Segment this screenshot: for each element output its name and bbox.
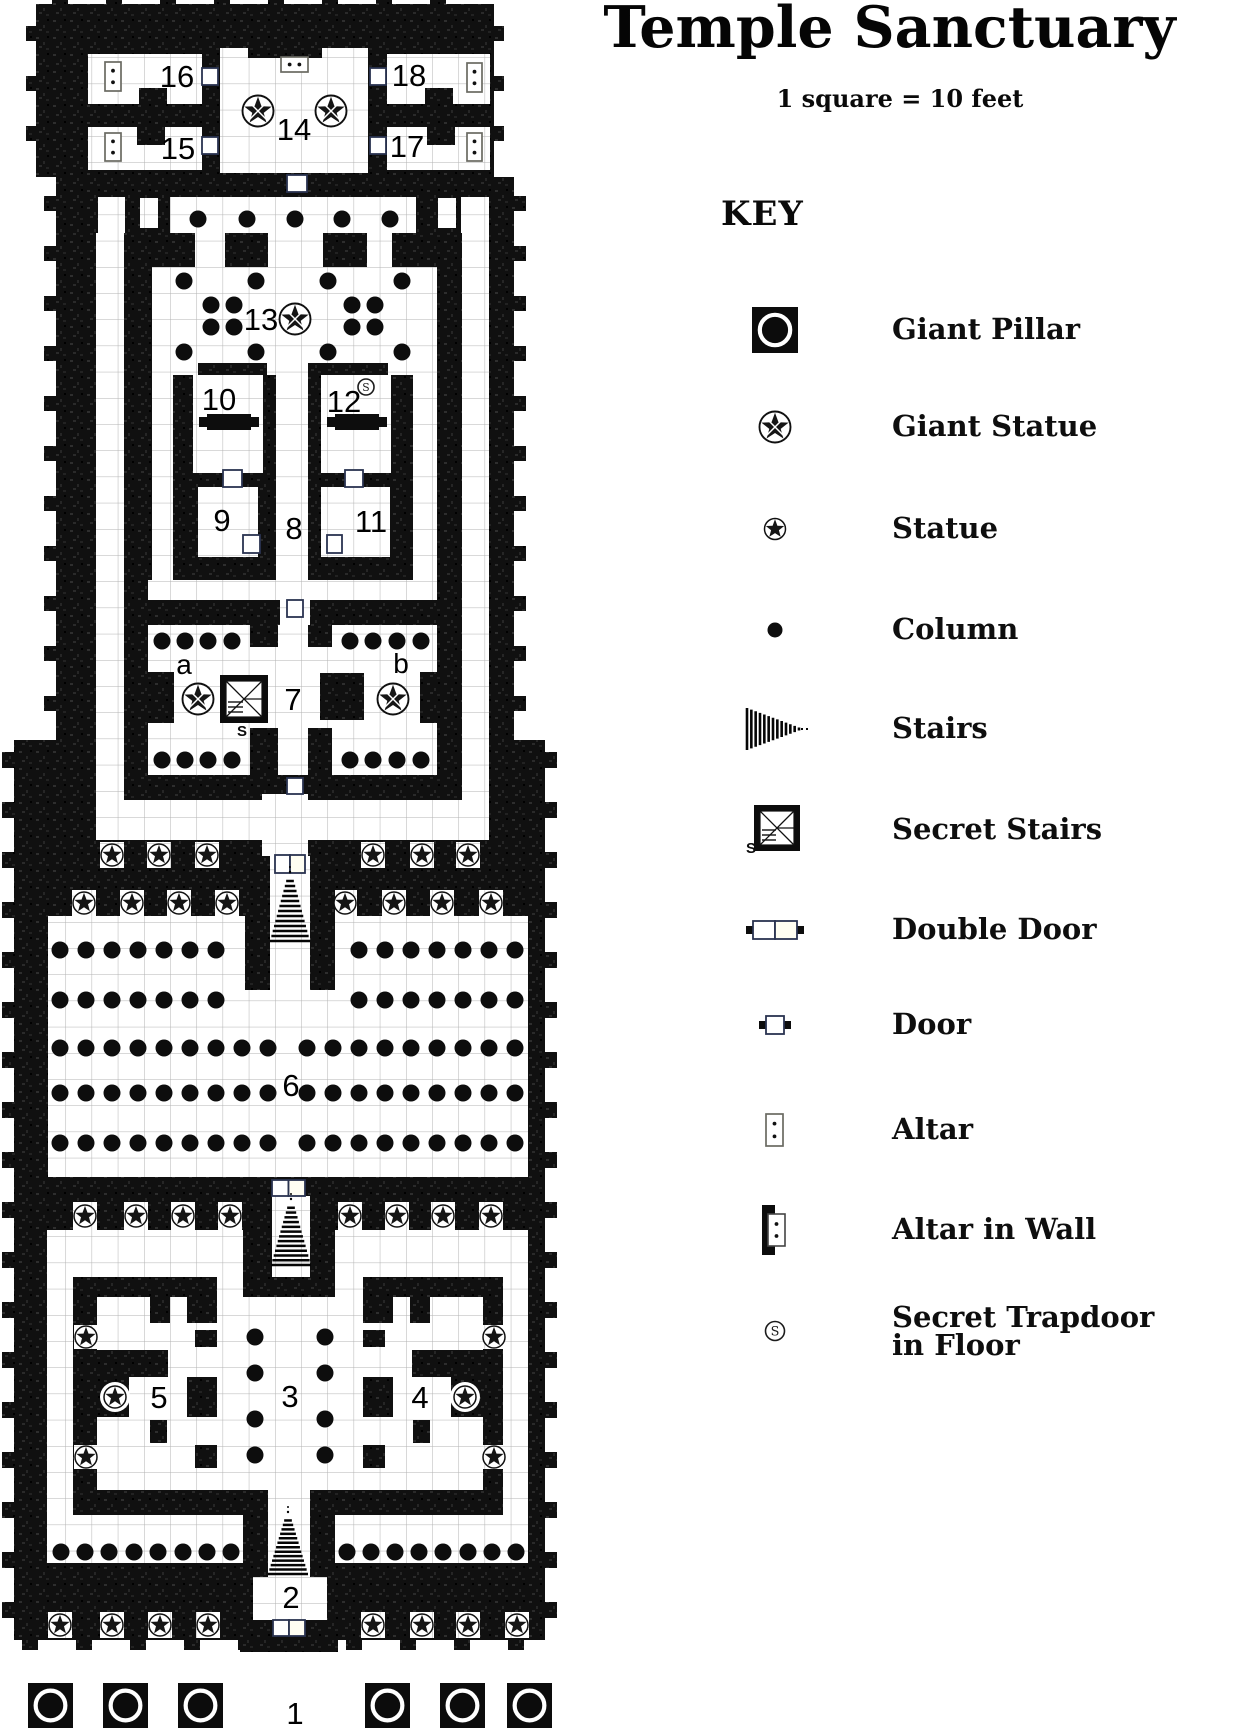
double-door-icon <box>746 921 804 939</box>
column-icon <box>247 1329 264 1346</box>
key-label: Giant Pillar <box>892 315 1080 343</box>
column-icon <box>156 992 173 1009</box>
statue-icon <box>431 892 453 914</box>
statue-icon <box>480 892 502 914</box>
key-label: Giant Statue <box>892 412 1097 440</box>
column-icon <box>351 992 368 1009</box>
column-icon <box>351 1135 368 1152</box>
column-icon <box>394 273 411 290</box>
giant-pillar-icon <box>103 1683 148 1728</box>
statue-icon <box>148 844 170 866</box>
column-icon <box>377 1135 394 1152</box>
double-door-icon <box>275 855 305 873</box>
column-icon <box>413 633 430 650</box>
column-icon <box>52 992 69 1009</box>
column-icon <box>299 1085 316 1102</box>
column-icon <box>260 1085 277 1102</box>
column-icon <box>176 344 193 361</box>
column-icon <box>339 1544 356 1561</box>
column-icon <box>104 1135 121 1152</box>
column-icon <box>365 752 382 769</box>
statue-icon <box>219 1205 241 1227</box>
giant-statue-icon <box>760 412 791 443</box>
room-label-6: 6 <box>282 1068 299 1103</box>
altar-icon <box>766 1114 783 1146</box>
room-label-1: 1 <box>286 1696 303 1731</box>
column-icon <box>208 942 225 959</box>
altar-icon <box>737 1096 817 1164</box>
column-icon <box>130 1085 147 1102</box>
column-icon <box>150 1544 167 1561</box>
column-icon <box>481 1085 498 1102</box>
column-icon <box>455 1085 472 1102</box>
column-icon <box>78 1085 95 1102</box>
column-icon <box>177 633 194 650</box>
column-icon <box>367 297 384 314</box>
statue-icon <box>483 1326 505 1348</box>
door-icon <box>287 600 303 617</box>
column-icon <box>377 1085 394 1102</box>
column-icon <box>429 992 446 1009</box>
column-icon <box>130 942 147 959</box>
statue-icon <box>125 1205 147 1227</box>
column-icon <box>507 942 524 959</box>
key-label: Door <box>892 1010 971 1038</box>
column-icon <box>317 1447 334 1464</box>
column-icon <box>130 1135 147 1152</box>
column-icon <box>154 752 171 769</box>
giant-pillar-icon <box>737 296 817 364</box>
column-icon <box>223 1544 240 1561</box>
column-icon <box>101 1544 118 1561</box>
key-label: Secret Trapdoor in Floor <box>892 1303 1154 1359</box>
column-icon <box>53 1544 70 1561</box>
column-icon <box>507 1085 524 1102</box>
column-icon <box>224 752 241 769</box>
door-icon <box>202 137 218 154</box>
giant-pillar-icon <box>752 307 798 353</box>
column-icon <box>203 319 220 336</box>
column-icon <box>234 1040 251 1057</box>
column-icon <box>325 1040 342 1057</box>
column-icon <box>367 319 384 336</box>
svg-text:S: S <box>362 381 369 394</box>
column-icon <box>182 1040 199 1057</box>
column-icon <box>455 942 472 959</box>
column-icon <box>126 1544 143 1561</box>
column-icon <box>377 992 394 1009</box>
column-icon <box>247 1365 264 1382</box>
statue-icon <box>432 1205 454 1227</box>
giant-statue-icon <box>243 96 274 127</box>
statue-icon <box>480 1205 502 1227</box>
column-icon <box>342 752 359 769</box>
column-icon <box>104 1085 121 1102</box>
column-icon <box>363 1544 380 1561</box>
column-icon <box>156 1040 173 1057</box>
column-icon <box>435 1544 452 1561</box>
column-icon <box>299 1040 316 1057</box>
giant-pillar-icon <box>365 1683 410 1728</box>
double-door-icon <box>272 1180 305 1196</box>
column-icon <box>156 942 173 959</box>
column-icon <box>182 992 199 1009</box>
room-label-2: 2 <box>282 1580 299 1615</box>
svg-text:S: S <box>746 840 756 857</box>
column-icon <box>484 1544 501 1561</box>
statue-icon <box>334 892 356 914</box>
double-door-icon <box>273 1620 305 1636</box>
door-icon <box>345 470 363 487</box>
room-label-8: 8 <box>285 511 302 546</box>
room-label-7: 7 <box>284 682 301 717</box>
secret-trapdoor-icon: S <box>766 1322 785 1341</box>
column-icon <box>342 633 359 650</box>
giant-pillar-icon <box>178 1683 223 1728</box>
column-icon <box>429 1135 446 1152</box>
column-icon <box>455 1135 472 1152</box>
key-label: Altar <box>892 1115 973 1143</box>
key-label: Secret Stairs <box>892 815 1102 843</box>
column-icon <box>413 752 430 769</box>
stairs-icon <box>737 695 817 763</box>
column-icon <box>104 992 121 1009</box>
column-icon <box>334 211 351 228</box>
room-label-10: 10 <box>202 382 236 417</box>
column-icon <box>377 942 394 959</box>
page: SS 123456789101112131415161718ab Temple … <box>0 0 1239 1736</box>
statue-icon <box>506 1614 528 1636</box>
column-icon <box>351 942 368 959</box>
column-icon <box>208 1040 225 1057</box>
column-icon <box>226 319 243 336</box>
column-icon <box>203 297 220 314</box>
giant-pillar-icon <box>28 1683 73 1728</box>
column-icon <box>156 1135 173 1152</box>
column-icon <box>320 273 337 290</box>
column-icon <box>226 297 243 314</box>
column-icon <box>224 633 241 650</box>
statue-icon <box>362 1614 384 1636</box>
room-label-17: 17 <box>390 129 424 164</box>
key-label: Column <box>892 615 1018 643</box>
door-icon <box>370 68 386 85</box>
statue-icon <box>457 1614 479 1636</box>
statue-icon <box>49 1614 71 1636</box>
column-icon <box>177 752 194 769</box>
column-icon <box>200 752 217 769</box>
column-icon <box>481 942 498 959</box>
column-icon <box>403 992 420 1009</box>
column-icon <box>507 1135 524 1152</box>
column-icon <box>387 1544 404 1561</box>
column-icon <box>78 942 95 959</box>
giant-statue-icon <box>316 96 347 127</box>
column-icon <box>52 1135 69 1152</box>
map-scale-note: 1 square = 10 feet <box>555 84 1239 113</box>
column-icon <box>190 211 207 228</box>
column-icon <box>176 273 193 290</box>
statue-icon <box>121 892 143 914</box>
column-icon <box>508 1544 525 1561</box>
giant-statue-icon <box>378 684 409 715</box>
column-icon <box>365 633 382 650</box>
altar-icon <box>105 133 121 161</box>
column-icon <box>239 211 256 228</box>
column-icon <box>317 1365 334 1382</box>
statue-icon <box>339 1205 361 1227</box>
column-icon <box>182 1085 199 1102</box>
column-icon <box>299 1135 316 1152</box>
room-label-14: 14 <box>277 112 311 147</box>
column-icon <box>325 1085 342 1102</box>
column-icon <box>199 1544 216 1561</box>
statue-icon <box>101 1614 123 1636</box>
column-icon <box>52 1085 69 1102</box>
giant-statue-icon <box>280 304 311 335</box>
column-icon <box>77 1544 94 1561</box>
column-icon <box>154 633 171 650</box>
room-label-3: 3 <box>281 1379 298 1414</box>
statue-icon <box>74 1205 96 1227</box>
door-icon <box>737 991 817 1059</box>
key-label: Statue <box>892 514 998 542</box>
column-icon <box>403 1135 420 1152</box>
statue-icon <box>411 844 433 866</box>
statue-icon <box>454 1386 476 1408</box>
key-heading: KEY <box>721 194 804 234</box>
column-icon <box>403 942 420 959</box>
altar-icon <box>467 133 482 161</box>
room-label-18: 18 <box>392 58 426 93</box>
column-icon <box>156 1085 173 1102</box>
column-icon <box>737 596 817 664</box>
room-label-12: 12 <box>327 384 361 419</box>
door-icon <box>327 535 342 553</box>
column-icon <box>247 1411 264 1428</box>
page-title: Temple Sanctuary <box>540 0 1239 61</box>
statue-icon <box>172 1205 194 1227</box>
door-icon <box>223 470 242 487</box>
door-icon <box>287 778 303 794</box>
column-icon <box>429 1040 446 1057</box>
column-icon <box>325 1135 342 1152</box>
key-label: Double Door <box>892 915 1097 943</box>
giant-statue-icon <box>183 684 214 715</box>
column-icon <box>320 344 337 361</box>
column-icon <box>234 1085 251 1102</box>
statue-icon <box>457 844 479 866</box>
door-icon <box>202 68 218 85</box>
column-icon <box>104 1040 121 1057</box>
column-icon <box>208 992 225 1009</box>
column-icon <box>248 344 265 361</box>
column-icon <box>394 344 411 361</box>
key-label: Stairs <box>892 714 988 742</box>
door-icon <box>287 175 307 192</box>
column-icon <box>481 1040 498 1057</box>
column-icon <box>78 1135 95 1152</box>
key-label: Altar in Wall <box>892 1215 1096 1243</box>
secret-trapdoor-icon: S <box>737 1297 817 1365</box>
statue-icon <box>483 1446 505 1468</box>
column-icon <box>481 1135 498 1152</box>
column-icon <box>377 1040 394 1057</box>
column-icon <box>344 319 361 336</box>
statue-icon <box>104 1386 126 1408</box>
room-label-5: 5 <box>150 1380 167 1415</box>
statue-icon <box>362 844 384 866</box>
statue-icon <box>216 892 238 914</box>
column-icon <box>78 1040 95 1057</box>
giant-pillar-icon <box>440 1683 485 1728</box>
statue-icon <box>73 892 95 914</box>
statue-icon <box>737 495 817 563</box>
room-label-a: a <box>176 649 192 680</box>
column-icon <box>411 1544 428 1561</box>
svg-text:S: S <box>771 1325 780 1340</box>
statue-icon <box>411 1614 433 1636</box>
column-icon <box>389 633 406 650</box>
room-label-15: 15 <box>161 131 195 166</box>
stairs-icon <box>747 708 811 750</box>
column-icon <box>429 1085 446 1102</box>
door-icon <box>243 535 260 553</box>
statue-icon <box>196 844 218 866</box>
column-icon <box>460 1544 477 1561</box>
column-icon <box>317 1411 334 1428</box>
column-icon <box>344 297 361 314</box>
column-icon <box>429 942 446 959</box>
room-label-4: 4 <box>411 1380 428 1415</box>
column-icon <box>455 1040 472 1057</box>
column-icon <box>260 1040 277 1057</box>
room-label-11: 11 <box>355 504 387 539</box>
column-icon <box>200 633 217 650</box>
room-label-b: b <box>393 648 409 679</box>
door-icon <box>370 137 386 154</box>
room-label-16: 16 <box>160 59 194 94</box>
room-label-13: 13 <box>244 302 278 337</box>
column-icon <box>507 992 524 1009</box>
altar-icon <box>105 62 121 91</box>
column-icon <box>351 1085 368 1102</box>
column-icon <box>52 942 69 959</box>
statue-icon <box>75 1326 97 1348</box>
column-icon <box>175 1544 192 1561</box>
column-icon <box>481 992 498 1009</box>
svg-text:S: S <box>237 723 247 740</box>
column-icon <box>182 1135 199 1152</box>
column-icon <box>317 1329 334 1346</box>
statue-icon <box>75 1446 97 1468</box>
column-icon <box>260 1135 277 1152</box>
altar-icon <box>281 57 308 72</box>
temple-map: SS 123456789101112131415161718ab <box>0 0 1239 1736</box>
statue-icon <box>101 844 123 866</box>
column-icon <box>455 992 472 1009</box>
column-icon <box>78 992 95 1009</box>
column-icon <box>382 211 399 228</box>
statue-icon <box>168 892 190 914</box>
altar-in-wall-icon <box>737 1196 817 1264</box>
room-label-9: 9 <box>213 503 230 538</box>
secret-stairs-icon: S <box>737 796 817 864</box>
altar-in-wall-icon <box>762 1205 785 1255</box>
door-icon <box>759 1016 791 1034</box>
giant-pillar-icon <box>507 1683 552 1728</box>
column-icon <box>52 1040 69 1057</box>
column-icon <box>768 623 783 638</box>
altar-icon <box>467 63 482 92</box>
secret-stairs-icon: S <box>746 805 800 857</box>
column-icon <box>130 1040 147 1057</box>
column-icon <box>248 273 265 290</box>
column-icon <box>247 1447 264 1464</box>
column-icon <box>182 942 199 959</box>
column-icon <box>403 1085 420 1102</box>
statue-icon <box>383 892 405 914</box>
column-icon <box>208 1135 225 1152</box>
statue-icon <box>197 1614 219 1636</box>
statue-icon <box>765 519 786 540</box>
giant-statue-icon <box>737 393 817 461</box>
column-icon <box>130 992 147 1009</box>
statue-icon <box>149 1614 171 1636</box>
statue-icon <box>386 1205 408 1227</box>
column-icon <box>287 211 304 228</box>
column-icon <box>507 1040 524 1057</box>
column-icon <box>389 752 406 769</box>
column-icon <box>351 1040 368 1057</box>
column-icon <box>208 1085 225 1102</box>
column-icon <box>234 1135 251 1152</box>
column-icon <box>104 942 121 959</box>
double-door-icon <box>737 896 817 964</box>
column-icon <box>403 1040 420 1057</box>
